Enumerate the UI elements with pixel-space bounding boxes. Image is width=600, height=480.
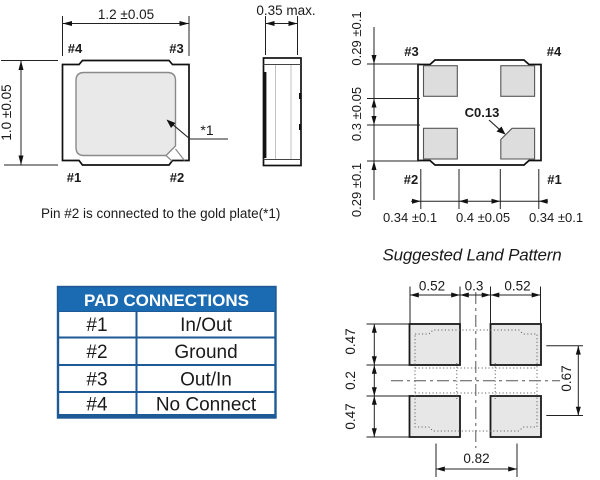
- svg-text:Out/In: Out/In: [180, 370, 232, 391]
- svg-text:0.35 max.: 0.35 max.: [256, 3, 315, 18]
- svg-text:0.3 ±0.05: 0.3 ±0.05: [349, 87, 364, 141]
- svg-text:0.29 ±0.1: 0.29 ±0.1: [349, 163, 364, 217]
- svg-text:0.29 ±0.1: 0.29 ±0.1: [349, 11, 364, 65]
- svg-text:#2: #2: [404, 172, 418, 187]
- svg-text:No Connect: No Connect: [156, 395, 257, 416]
- svg-text:0.52: 0.52: [419, 279, 445, 294]
- svg-text:#1: #1: [86, 315, 107, 336]
- svg-text:In/Out: In/Out: [180, 315, 232, 336]
- svg-text:#4: #4: [68, 41, 83, 56]
- svg-text:*1: *1: [200, 122, 213, 138]
- svg-text:#3: #3: [86, 370, 107, 391]
- svg-text:1.2 ±0.05: 1.2 ±0.05: [98, 7, 154, 22]
- svg-text:#2: #2: [86, 342, 107, 363]
- svg-text:0.82: 0.82: [463, 451, 489, 466]
- svg-text:0.34 ±0.1: 0.34 ±0.1: [383, 210, 437, 225]
- svg-text:0.2: 0.2: [343, 371, 358, 390]
- svg-text:#4: #4: [547, 44, 562, 59]
- svg-text:#4: #4: [86, 395, 108, 416]
- svg-text:#1: #1: [67, 170, 81, 185]
- svg-text:Pin #2 is connected to the gol: Pin #2 is connected to the gold plate(*1…: [41, 206, 280, 221]
- svg-text:Ground: Ground: [174, 342, 237, 363]
- svg-text:Suggested Land Pattern: Suggested Land Pattern: [383, 246, 562, 265]
- svg-text:#3: #3: [169, 41, 183, 56]
- svg-text:1.0 ±0.05: 1.0 ±0.05: [0, 84, 14, 140]
- svg-text:0.52: 0.52: [504, 279, 530, 294]
- svg-text:C0.13: C0.13: [465, 105, 500, 120]
- svg-text:#2: #2: [170, 170, 184, 185]
- svg-text:0.47: 0.47: [343, 328, 358, 354]
- svg-text:0.3: 0.3: [465, 279, 484, 294]
- svg-text:#1: #1: [547, 172, 561, 187]
- svg-text:PAD CONNECTIONS: PAD CONNECTIONS: [84, 291, 249, 310]
- svg-text:0.4 ±0.05: 0.4 ±0.05: [456, 210, 510, 225]
- svg-text:0.34 ±0.1: 0.34 ±0.1: [529, 210, 583, 225]
- svg-text:#3: #3: [404, 44, 418, 59]
- svg-text:0.67: 0.67: [559, 365, 574, 391]
- svg-text:0.47: 0.47: [343, 403, 358, 429]
